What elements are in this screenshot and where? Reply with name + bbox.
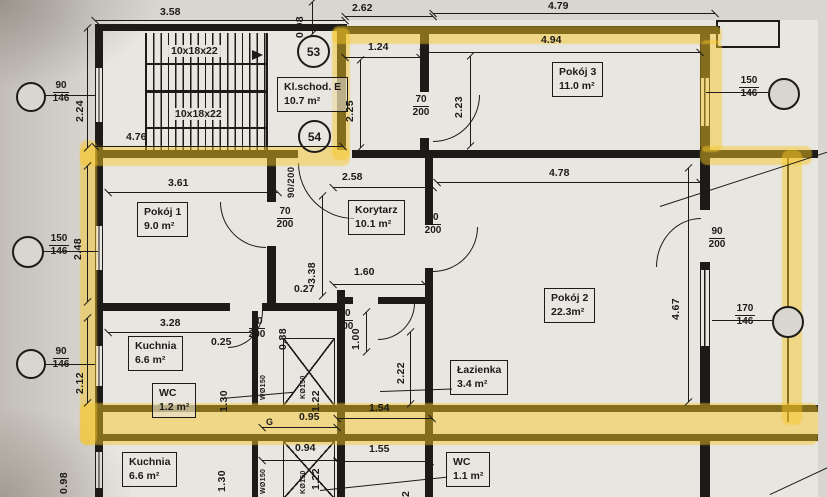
dimension-line (95, 146, 343, 147)
dimension-text: 3.58 (160, 6, 180, 18)
door-size-label: 70 200 (242, 316, 272, 341)
dimension-line (360, 60, 361, 148)
dimension-text: 2 (400, 482, 412, 497)
dimension-text: 1.22 (310, 450, 322, 490)
window-marker-circle (16, 349, 46, 379)
dimension-text: 2.23 (453, 72, 465, 118)
window-sill: 146 (734, 88, 764, 100)
room-name: WC (159, 387, 177, 399)
stair-flight-label: 10x18x22 (172, 108, 225, 120)
stair-rail (145, 127, 268, 129)
room-name: Korytarz (355, 204, 398, 216)
dimension-text: 0.27 (294, 283, 314, 295)
wall (95, 24, 347, 31)
wall (266, 33, 268, 153)
window-symbol (700, 270, 710, 346)
room-label: Kl.schod. E 10.7 m² (277, 77, 348, 112)
dimension-text: 0.88 (277, 316, 289, 350)
room-name: WC (453, 456, 471, 468)
window-symbol (95, 452, 103, 488)
wall (700, 346, 710, 405)
wall (700, 441, 710, 497)
dimension-line (312, 2, 313, 34)
vent-shaft-label: WØ150 (260, 446, 267, 494)
room-label: WC 1.1 m² (446, 452, 490, 487)
window-marker-circle (12, 236, 44, 268)
dimension-text: 2.22 (395, 334, 407, 384)
dimension-line (410, 332, 411, 404)
dimension-line (366, 312, 367, 352)
window-width: 150 (49, 233, 70, 246)
vent-shaft-label: KØ150 (300, 446, 307, 494)
wall (700, 262, 710, 270)
room-name: Łazienka (457, 364, 501, 376)
door-size-label: 80 200 (418, 212, 448, 237)
dimension-text: 1.30 (216, 452, 228, 492)
room-label: Korytarz 10.1 m² (348, 200, 405, 235)
duct-shaft (283, 338, 335, 406)
dimension-text: 1.55 (369, 443, 389, 455)
dimension-text: 3.38 (306, 232, 318, 284)
door-size-label: 70 200 (270, 206, 300, 231)
door-size-label: 70 200 (406, 94, 436, 119)
stair-rail (145, 63, 268, 65)
dimension-text: 2.62 (352, 2, 372, 14)
dimension-text: 2.12 (74, 348, 86, 394)
highlight-stroke (782, 150, 802, 425)
room-area: 1.2 m² (159, 401, 189, 413)
room-name: Kuchnia (129, 456, 170, 468)
dimension-line (345, 57, 420, 58)
dimension-text: 2.25 (344, 76, 356, 122)
dimension-line (423, 52, 700, 53)
room-name: Kuchnia (135, 340, 176, 352)
window-width: 150 (739, 75, 760, 88)
dimension-line (262, 427, 337, 428)
dimension-line (337, 461, 430, 462)
door-height: 200 (270, 219, 300, 231)
room-area: 6.6 m² (135, 354, 165, 366)
window-sill: 146 (46, 93, 76, 105)
dimension-text: 1.60 (354, 266, 374, 278)
door-size-label: 90/200 (286, 154, 297, 198)
room-area: 10.7 m² (284, 95, 320, 107)
window-marker-circle (772, 306, 804, 338)
room-name: Pokój 1 (144, 206, 181, 218)
dimension-line (345, 16, 433, 17)
window-marker-circle (16, 82, 46, 112)
gas-riser-label: G (266, 417, 273, 427)
window-marker-circle (768, 78, 800, 110)
window-symbol (95, 68, 103, 122)
door-width: 90 (709, 226, 724, 239)
dimension-line (470, 56, 471, 146)
unit-number-badge: 53 (297, 35, 330, 68)
window-sill: 146 (46, 359, 76, 371)
room-name: Pokój 2 (551, 292, 588, 304)
wall (95, 24, 103, 68)
dimension-line (333, 187, 433, 188)
window-width: 90 (53, 80, 68, 93)
dimension-text: 3.61 (168, 177, 188, 189)
dimension-line (87, 28, 88, 148)
dimension-line (322, 196, 323, 296)
dimension-text: 2.48 (72, 210, 84, 260)
door-size-label: 90 200 (702, 226, 732, 251)
door-width: 70 (249, 316, 264, 329)
dimension-text: 1.54 (369, 402, 389, 414)
window-size-label: 150 146 (734, 75, 764, 100)
room-label: Kuchnia 6.6 m² (122, 452, 177, 487)
dimension-text: 0.98 (294, 4, 306, 38)
dimension-line (433, 13, 715, 14)
dimension-text: 2.24 (74, 72, 86, 122)
dimension-text: 4.94 (541, 34, 561, 46)
window-sill: 146 (44, 246, 74, 258)
vent-shaft-label: KØ150 (300, 344, 307, 399)
room-area: 1.1 m² (453, 470, 483, 482)
door-width: 80 (425, 212, 440, 225)
floor-plan: 10x18x22 10x18x22 Kl.schod (0, 0, 827, 497)
door-height: 200 (418, 225, 448, 237)
wall (95, 488, 103, 497)
room-name: Pokój 3 (559, 66, 596, 78)
door-width: 70 (277, 206, 292, 219)
dimension-line (87, 166, 88, 302)
room-label: WC 1.2 m² (152, 383, 196, 418)
window-width: 90 (53, 346, 68, 359)
highlight-stroke (700, 40, 722, 152)
dimension-text: 4.67 (670, 270, 682, 320)
dimension-text: 1.22 (310, 372, 322, 412)
wall (700, 164, 710, 210)
room-area: 6.6 m² (129, 470, 159, 482)
dimension-text: 2.58 (342, 171, 362, 183)
dimension-text: 4.78 (549, 167, 569, 179)
stair-landing-line (145, 90, 268, 93)
wall (95, 303, 230, 311)
window-size-label: 90 146 (46, 80, 76, 105)
dimension-text: 1.30 (218, 372, 230, 412)
dimension-line (333, 284, 425, 285)
stair-flight-label: 10x18x22 (168, 45, 221, 57)
window-width: 170 (735, 303, 756, 316)
dimension-line (337, 418, 432, 419)
wall (345, 297, 353, 304)
wall (252, 441, 258, 497)
dimension-text: 1.00 (350, 312, 362, 350)
dimension-line (437, 182, 700, 183)
room-area: 9.0 m² (144, 220, 174, 232)
dimension-text: 0.98 (58, 452, 70, 494)
door-height: 200 (406, 107, 436, 119)
vent-shaft-label: WØ150 (260, 350, 267, 400)
window-size-label: 150 146 (44, 233, 74, 258)
room-label: Pokój 3 11.0 m² (552, 62, 603, 97)
stair-direction-arrow (252, 50, 263, 60)
dimension-line (108, 192, 278, 193)
window-size-label: 170 146 (730, 303, 760, 328)
room-area: 22.3m² (551, 306, 584, 318)
dimension-line (108, 332, 255, 333)
dimension-text: 4.79 (548, 0, 568, 12)
room-area: 11.0 m² (559, 80, 595, 92)
window-sill: 146 (730, 316, 760, 328)
wall (267, 246, 276, 310)
window-size-label: 90 146 (46, 346, 76, 371)
room-area: 10.1 m² (355, 218, 391, 230)
dimension-text: 3.28 (160, 317, 180, 329)
unit-number-badge: 54 (298, 120, 331, 153)
dimension-text: 0.25 (211, 336, 231, 348)
room-label: Pokój 1 9.0 m² (137, 202, 188, 237)
wall (420, 138, 429, 154)
dimension-text: 1.24 (368, 41, 388, 53)
dimension-text: 4.76 (126, 131, 146, 143)
door-height: 200 (702, 239, 732, 251)
room-label: Łazienka 3.4 m² (450, 360, 508, 395)
room-name: Kl.schod. E (284, 81, 341, 93)
room-area: 3.4 m² (457, 378, 487, 390)
room-label: Kuchnia 6.6 m² (128, 336, 183, 371)
dimension-line (688, 168, 689, 402)
dimension-line (87, 318, 88, 403)
wall (716, 20, 780, 48)
dimension-text: 0.95 (299, 411, 319, 423)
room-label: Pokój 2 22.3m² (544, 288, 595, 323)
dimension-line (95, 20, 345, 21)
door-width: 70 (413, 94, 428, 107)
highlight-stroke (332, 26, 722, 44)
